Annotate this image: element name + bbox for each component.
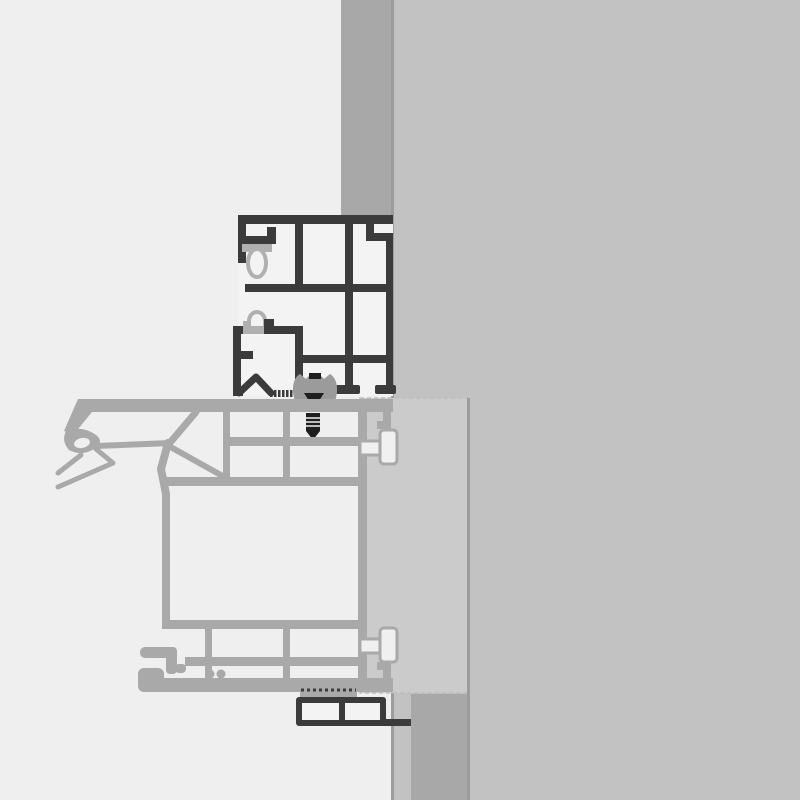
hook-flare [377, 421, 391, 429]
frame-web-v1-upper [295, 221, 303, 291]
t-connector-head [380, 628, 397, 662]
claw-foot [138, 668, 164, 692]
sash-bump [206, 670, 215, 679]
frame-divider-h4 [295, 355, 387, 363]
sash-divider-lower-1 [162, 620, 362, 629]
serration-tooth [290, 390, 293, 397]
teardrop-gasket [248, 249, 266, 277]
sash-divider-mid [163, 477, 362, 486]
frame-divider-h2 [245, 284, 387, 292]
frame-left-nub [241, 351, 253, 359]
panel-wall-edge-line [467, 398, 470, 800]
serration-tooth [286, 390, 289, 397]
arch-gasket [249, 312, 265, 326]
sash-seal-link [96, 443, 170, 446]
serration-tooth [274, 390, 277, 397]
frame-notch-horizontal [366, 233, 390, 241]
wall-reveal-band-bottom [411, 694, 469, 800]
serration-tooth [270, 390, 273, 397]
serration-tooth [282, 390, 285, 397]
wall-reveal-band-top [341, 0, 391, 217]
frame-top-bar [238, 215, 393, 224]
sill-divider [339, 700, 345, 723]
serration-tooth [278, 390, 281, 397]
frame-left-wall-lower [233, 326, 241, 396]
sash-web-a [223, 412, 230, 486]
sill-extension-bar [383, 719, 411, 726]
frame-bottom-left-base [233, 389, 243, 396]
claw-nub [175, 664, 186, 673]
frame-right-wall-foot [375, 385, 396, 394]
frame-web-v2-foot [336, 385, 360, 394]
t-connector-head [380, 430, 397, 464]
technical-drawing [0, 0, 800, 800]
sash-bump [217, 670, 226, 679]
sash-bottom-bar [148, 678, 393, 692]
frame-gasket-cap-lower [264, 319, 274, 334]
sill-spacer-bar [300, 691, 357, 697]
clip-notch [309, 373, 321, 379]
frame-gasket-cap-hook [267, 227, 276, 240]
sash-web-d [283, 629, 290, 681]
drawing-canvas [0, 0, 800, 800]
sash-top-bar [78, 399, 393, 412]
sash-web-b [283, 412, 290, 486]
glazing-clip [293, 373, 337, 401]
frame-right-wall [386, 233, 393, 387]
outer-frame-profile [233, 215, 396, 397]
sash-divider-upper [225, 437, 362, 446]
